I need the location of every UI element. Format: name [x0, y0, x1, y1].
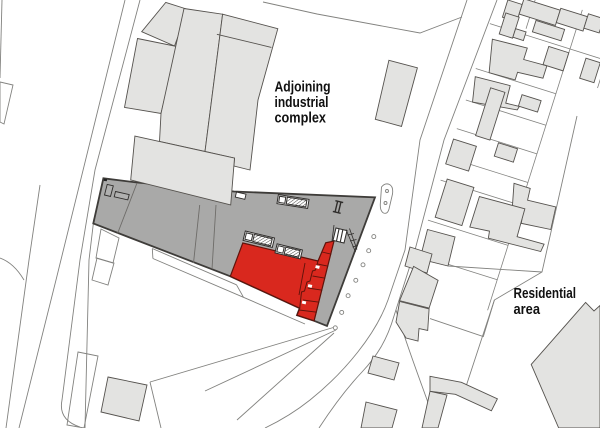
svg-text:area: area	[514, 302, 541, 318]
svg-text:industrial: industrial	[275, 95, 329, 111]
svg-text:Adjoining: Adjoining	[275, 80, 331, 96]
svg-text:complex: complex	[275, 111, 327, 127]
svg-text:Residential: Residential	[514, 286, 577, 302]
